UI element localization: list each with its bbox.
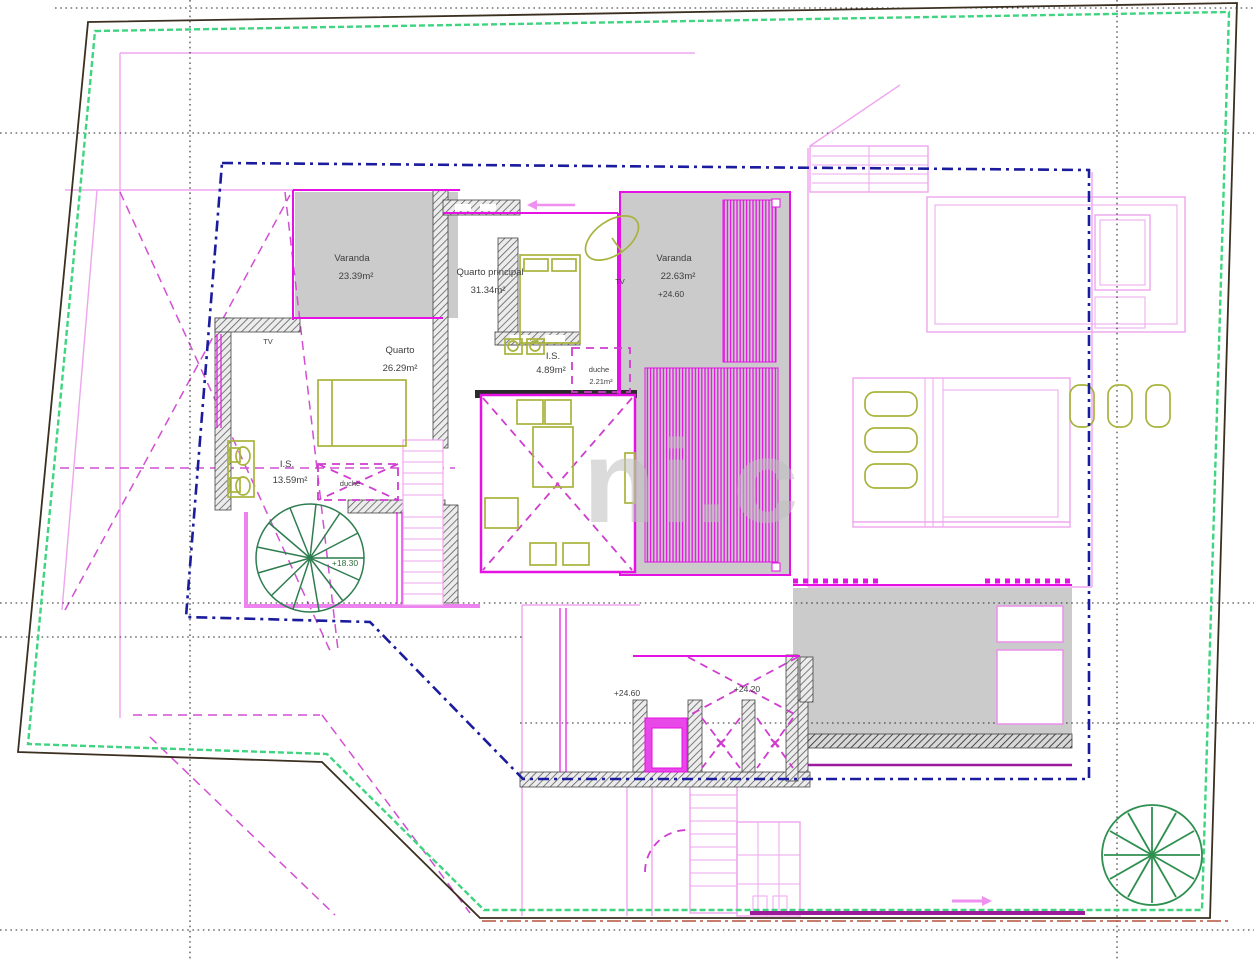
floor-plan-canvas: ni.c Varanda 23.39m² Quarto principal 31…: [0, 0, 1254, 960]
room-label-is2: I.S.: [280, 459, 294, 470]
room-area-varanda-left: 23.39m²: [339, 271, 374, 282]
level-varanda-right: +24.60: [658, 289, 685, 299]
straight-stair: [403, 440, 443, 605]
tv-annotation-1: TV: [615, 277, 625, 286]
room-label-varanda-left: Varanda: [334, 253, 370, 264]
room-area-is1: 4.89m²: [536, 365, 566, 376]
room-area-quarto-principal: 31.34m²: [471, 285, 506, 296]
arrow-right-icon: [952, 896, 992, 906]
level-spiral-stair: +18.30: [332, 558, 359, 568]
room-area-duche1: 2.21m²: [589, 377, 613, 386]
room-label-is1: I.S.: [546, 351, 560, 362]
watermark: ni.c: [583, 416, 802, 548]
arrow-left-icon: [527, 200, 575, 210]
pergola-stripes-upper: [723, 200, 776, 362]
sun-loungers: [865, 385, 1170, 488]
room-label-quarto: Quarto: [385, 345, 414, 356]
room-area-varanda-right: 22.63m²: [661, 271, 696, 282]
bed-principal: [520, 255, 580, 343]
room-label-duche1: duche: [589, 365, 609, 374]
tree-icon: [1102, 805, 1202, 905]
room-label-quarto-principal: Quarto principal: [456, 267, 523, 278]
room-area-quarto: 26.29m²: [383, 363, 418, 374]
level-upper-void: +24.20: [734, 684, 761, 694]
tv-annotation-2: TV: [263, 337, 273, 346]
room-label-duche2: duche: [340, 479, 360, 488]
level-hall: +24.60: [614, 688, 641, 698]
room-label-varanda-right: Varanda: [656, 253, 692, 264]
room-area-is2: 13.59m²: [273, 475, 308, 486]
